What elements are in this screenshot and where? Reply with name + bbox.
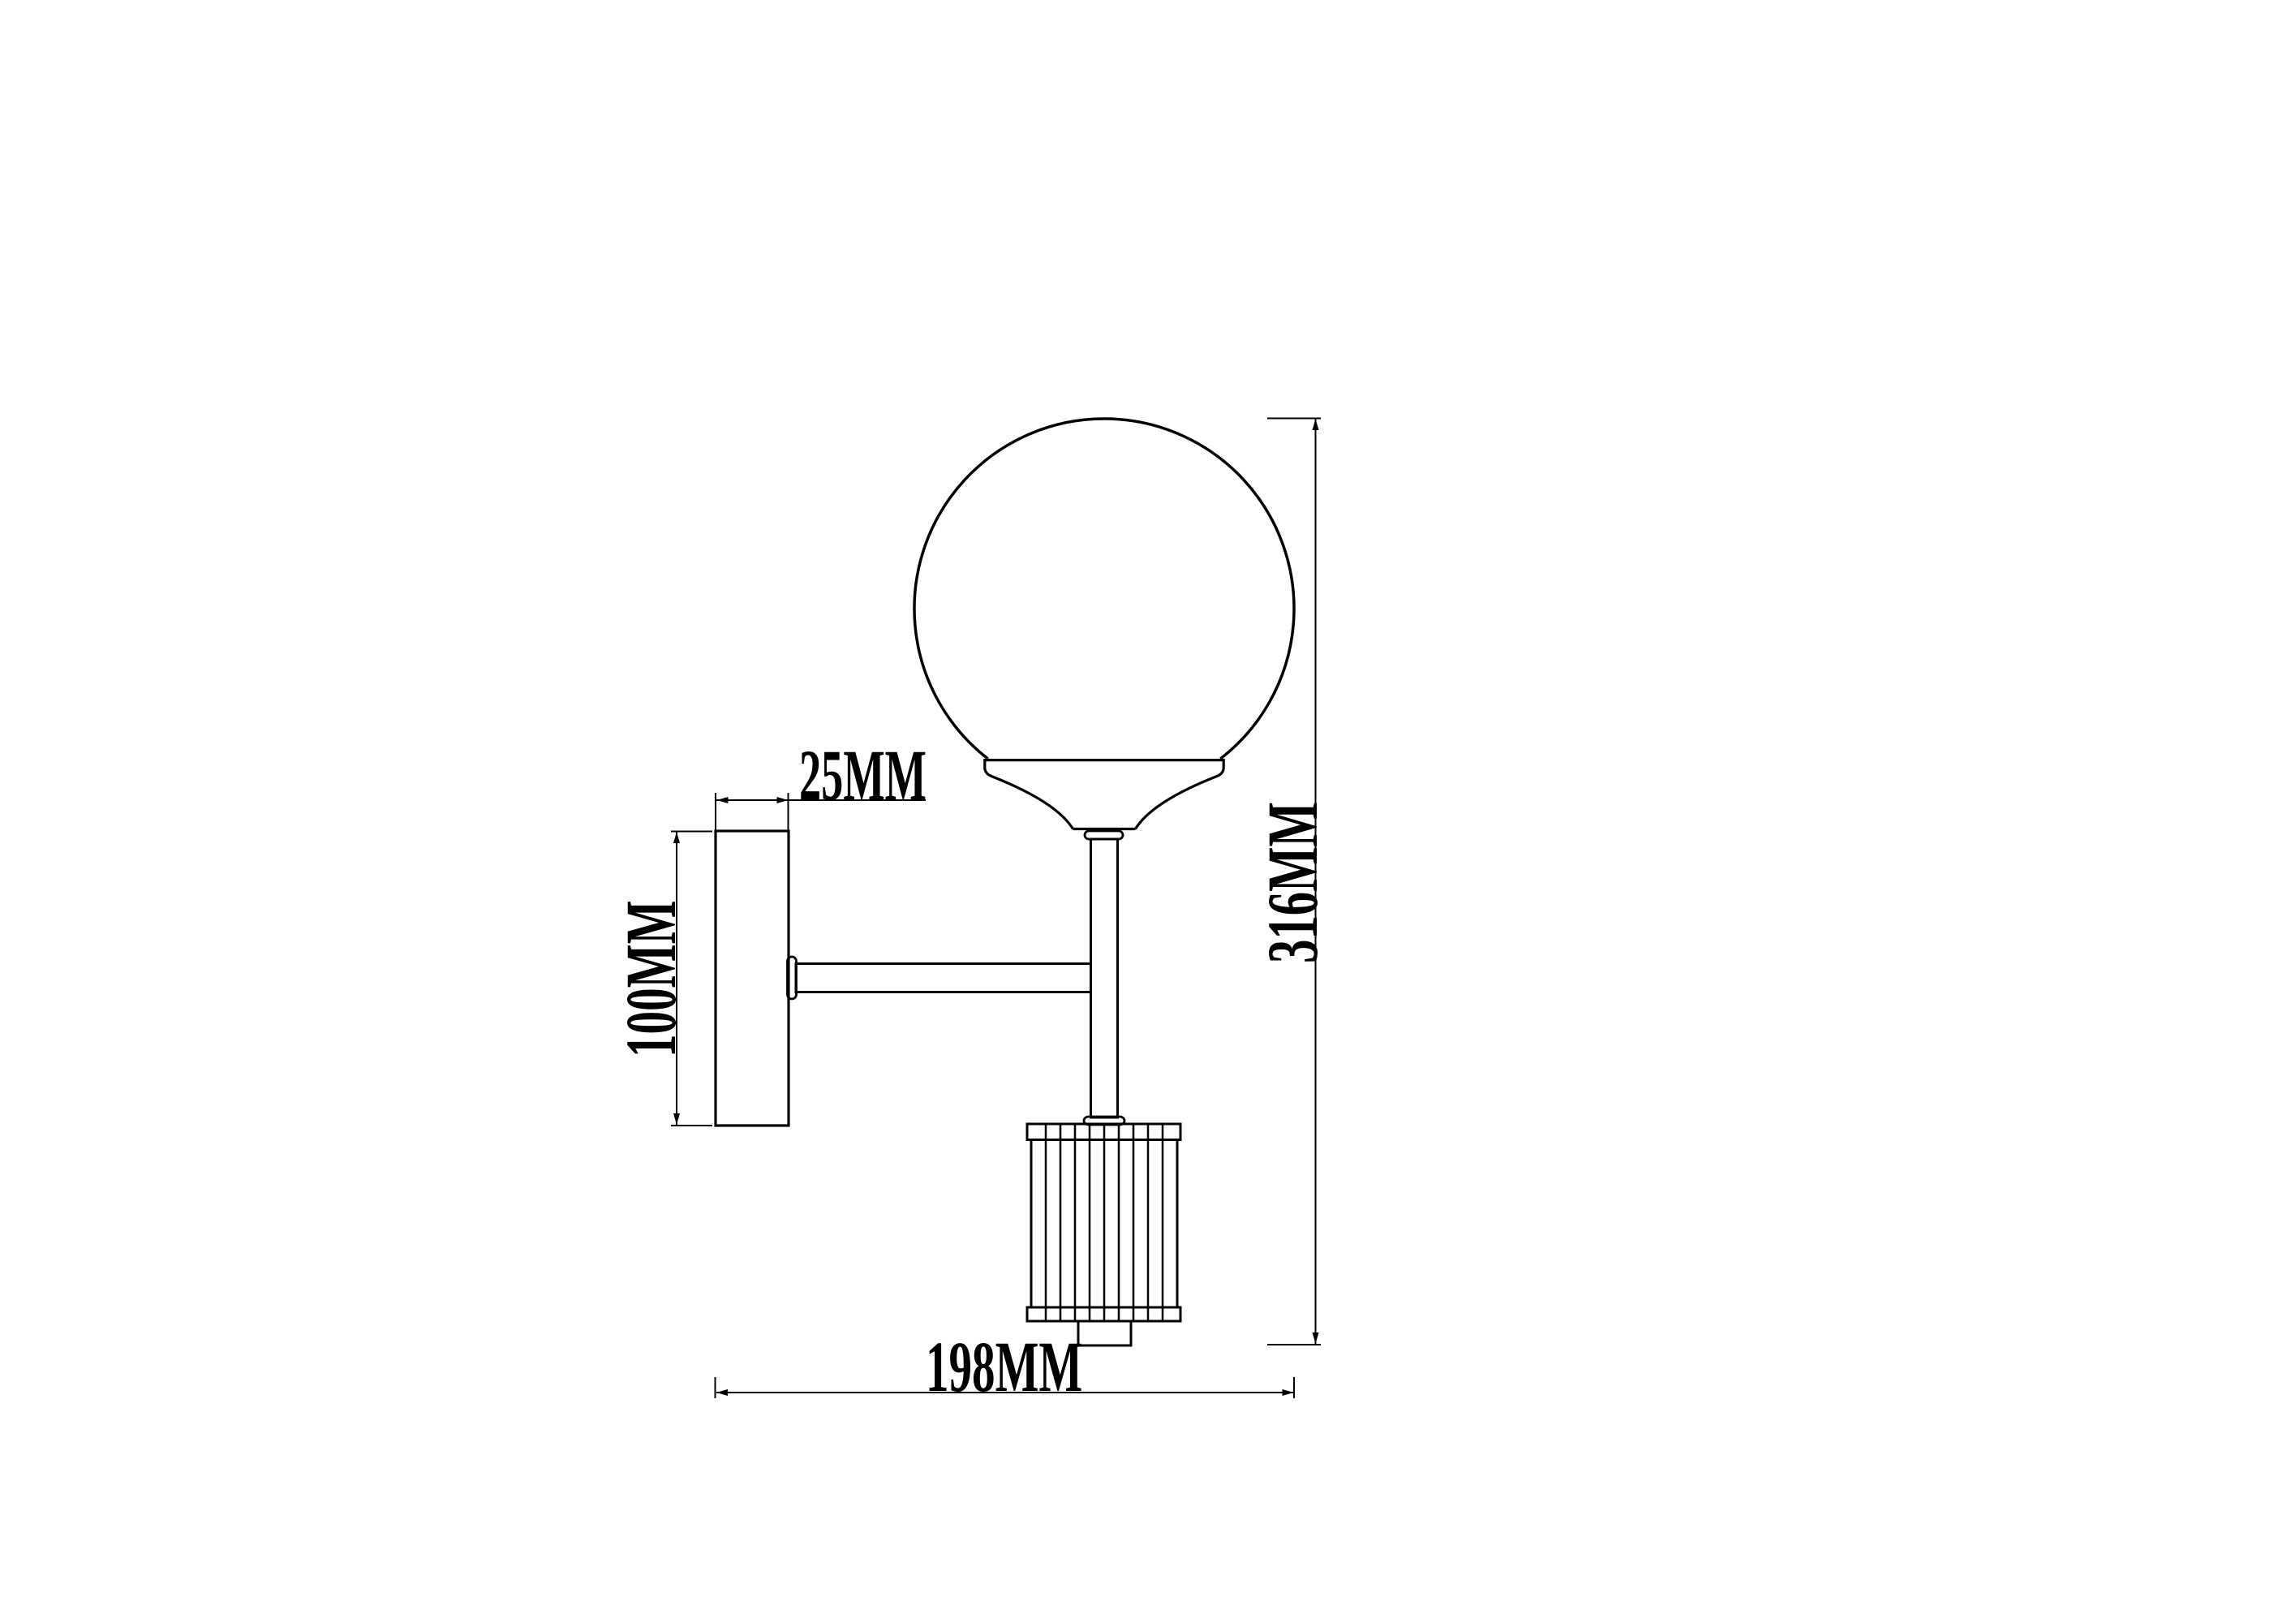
svg-text:198MM: 198MM	[926, 1327, 1082, 1407]
svg-text:25MM: 25MM	[799, 734, 927, 815]
svg-text:100MM: 100MM	[611, 900, 691, 1057]
svg-text:316MM: 316MM	[1253, 802, 1333, 963]
